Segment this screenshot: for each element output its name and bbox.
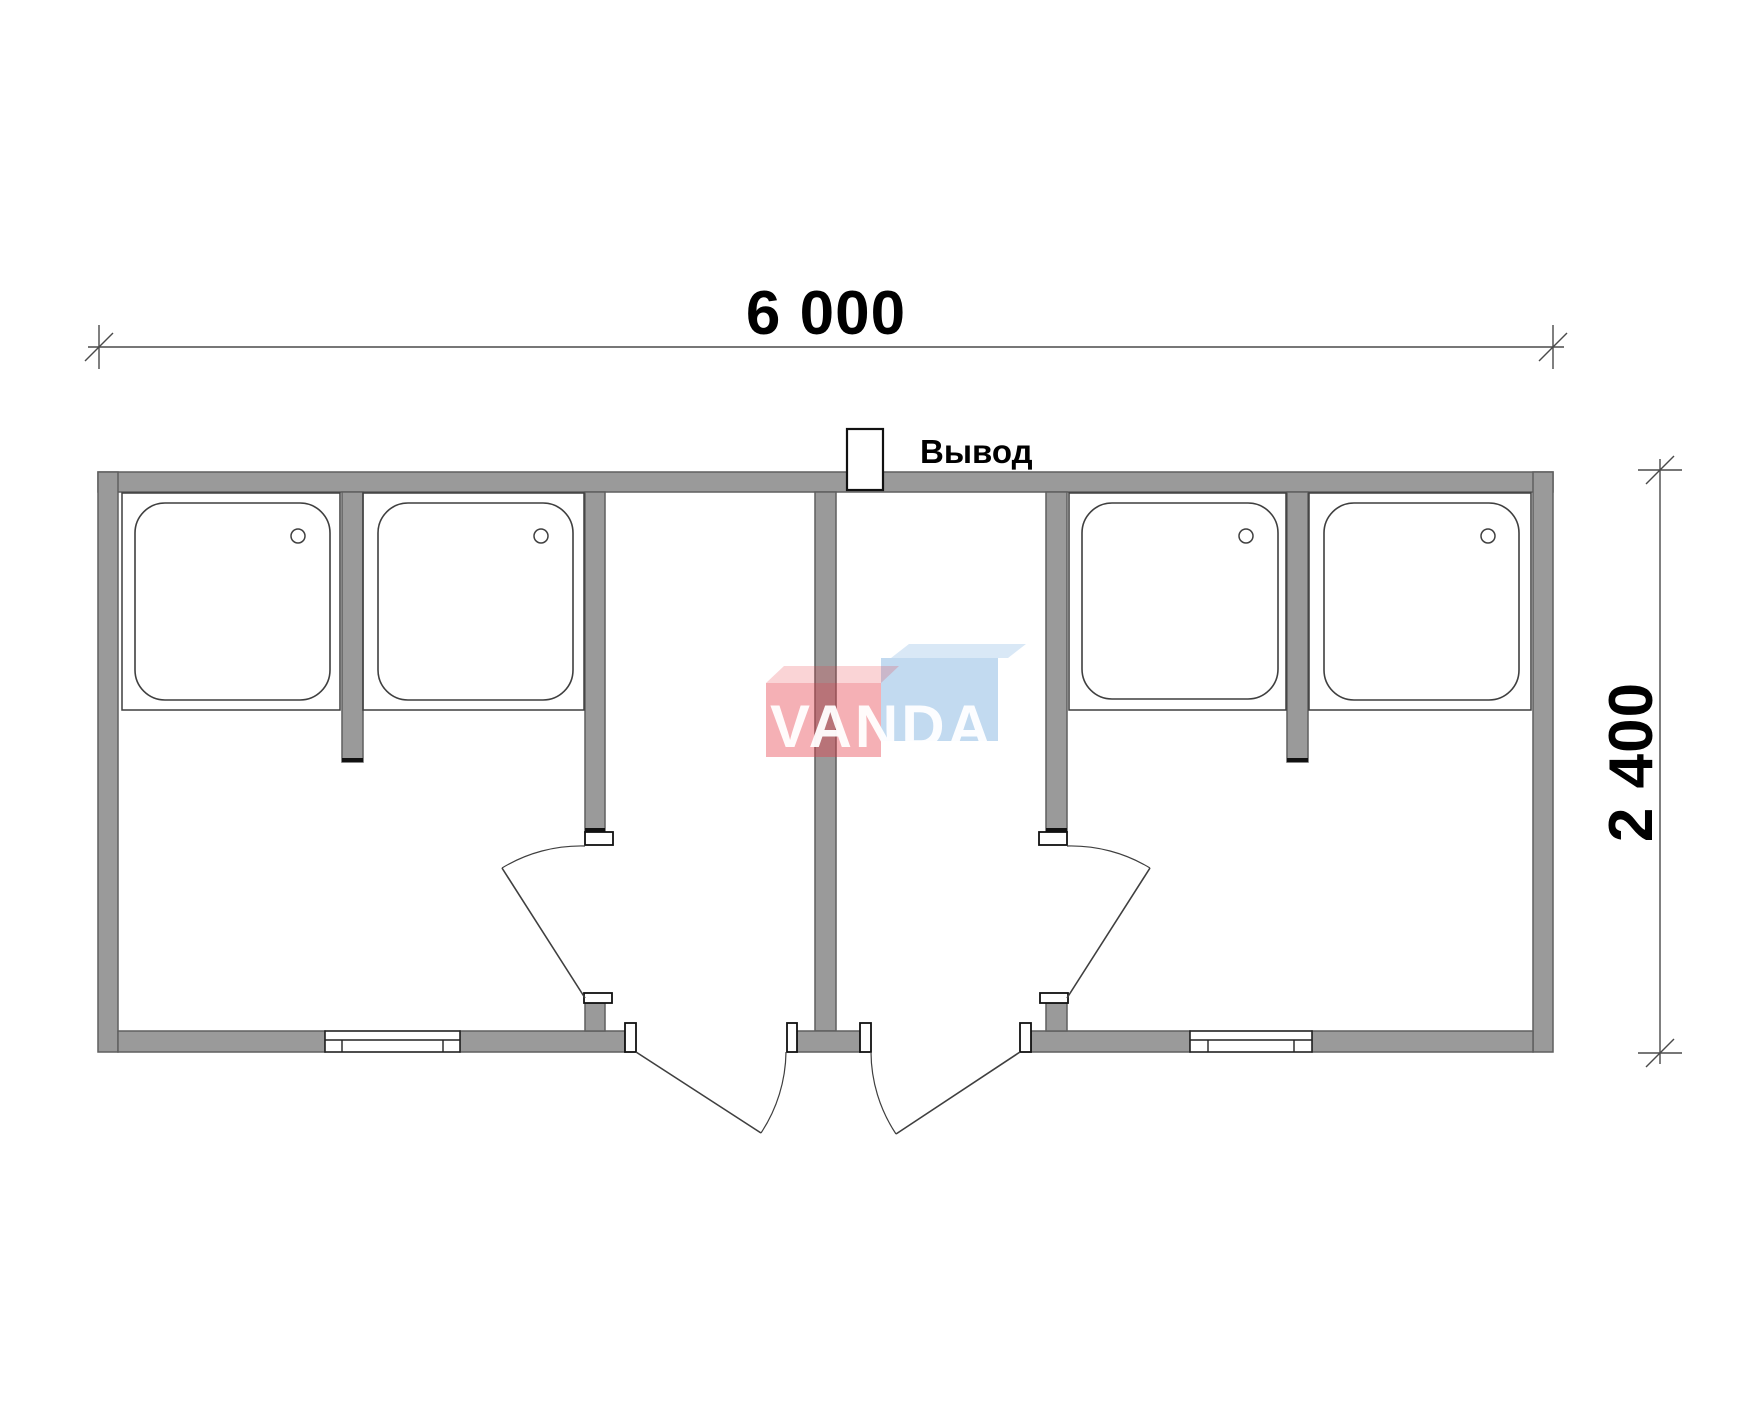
shower-tray-1 bbox=[135, 503, 330, 700]
logo-text: VANDA bbox=[770, 693, 994, 760]
wall-center-t-bar bbox=[797, 1031, 860, 1052]
door-leaf-right-entrance bbox=[896, 1052, 1020, 1134]
shower-tray-4 bbox=[1324, 503, 1519, 700]
jamb-left-interior-bottom bbox=[584, 993, 612, 1003]
jamb-entrance-right-inner bbox=[860, 1023, 871, 1052]
logo-ribbon-blue-top bbox=[891, 644, 1026, 658]
jamb-entrance-left-outer bbox=[625, 1023, 636, 1052]
shower-tray-2 bbox=[378, 503, 573, 700]
top-dimension-label: 6 000 bbox=[746, 279, 906, 348]
wall-end-cap bbox=[1287, 758, 1308, 762]
jamb-entrance-right-outer bbox=[1020, 1023, 1031, 1052]
partition-left-showers bbox=[342, 492, 363, 762]
wall-bottom-seg1 bbox=[118, 1031, 325, 1052]
door-swing-left-entrance bbox=[761, 1052, 786, 1133]
door-leaf-left-interior bbox=[502, 868, 585, 998]
jamb-left-interior-top bbox=[585, 832, 613, 845]
outlet-box bbox=[847, 429, 883, 490]
wall-right-shower-room bbox=[1046, 492, 1067, 832]
door-leaf-left-entrance bbox=[636, 1052, 761, 1133]
wall-left-door-stub bbox=[585, 1003, 605, 1031]
wall-right bbox=[1533, 472, 1553, 1052]
wall-bottom-seg2 bbox=[460, 1031, 625, 1052]
vanda-watermark: VANDA bbox=[766, 644, 1026, 760]
logo-ribbon-red-top bbox=[766, 666, 899, 683]
wall-top bbox=[98, 472, 1553, 492]
shower-tray-3 bbox=[1082, 503, 1278, 699]
partition-right-showers bbox=[1287, 492, 1308, 762]
jamb-entrance-left-inner bbox=[787, 1023, 797, 1052]
wall-right-door-stub bbox=[1046, 1003, 1067, 1031]
right-dimension: 2 400 bbox=[1597, 456, 1682, 1067]
jamb-right-interior-bottom bbox=[1040, 993, 1068, 1003]
wall-end-cap bbox=[342, 758, 363, 762]
window-left bbox=[325, 1031, 460, 1052]
door-swing-left-interior bbox=[502, 846, 585, 868]
wall-left bbox=[98, 472, 118, 1052]
door-swing-right-interior bbox=[1067, 846, 1150, 868]
door-swing-right-entrance bbox=[871, 1052, 896, 1134]
top-dimension: 6 000 bbox=[85, 279, 1567, 369]
wall-bottom-seg4 bbox=[1312, 1031, 1533, 1052]
outlet-label: Вывод bbox=[920, 433, 1033, 470]
door-leaf-right-interior bbox=[1067, 868, 1150, 998]
wall-left-shower-room bbox=[585, 492, 605, 832]
wall-center-dividing bbox=[815, 492, 836, 1031]
jamb-right-interior-top bbox=[1039, 832, 1067, 845]
floor-plan-canvas: 6 000 2 400 bbox=[0, 0, 1763, 1413]
wall-bottom-seg3 bbox=[1031, 1031, 1190, 1052]
floor-plan-svg: 6 000 2 400 bbox=[0, 0, 1763, 1413]
right-dimension-label: 2 400 bbox=[1597, 682, 1666, 842]
